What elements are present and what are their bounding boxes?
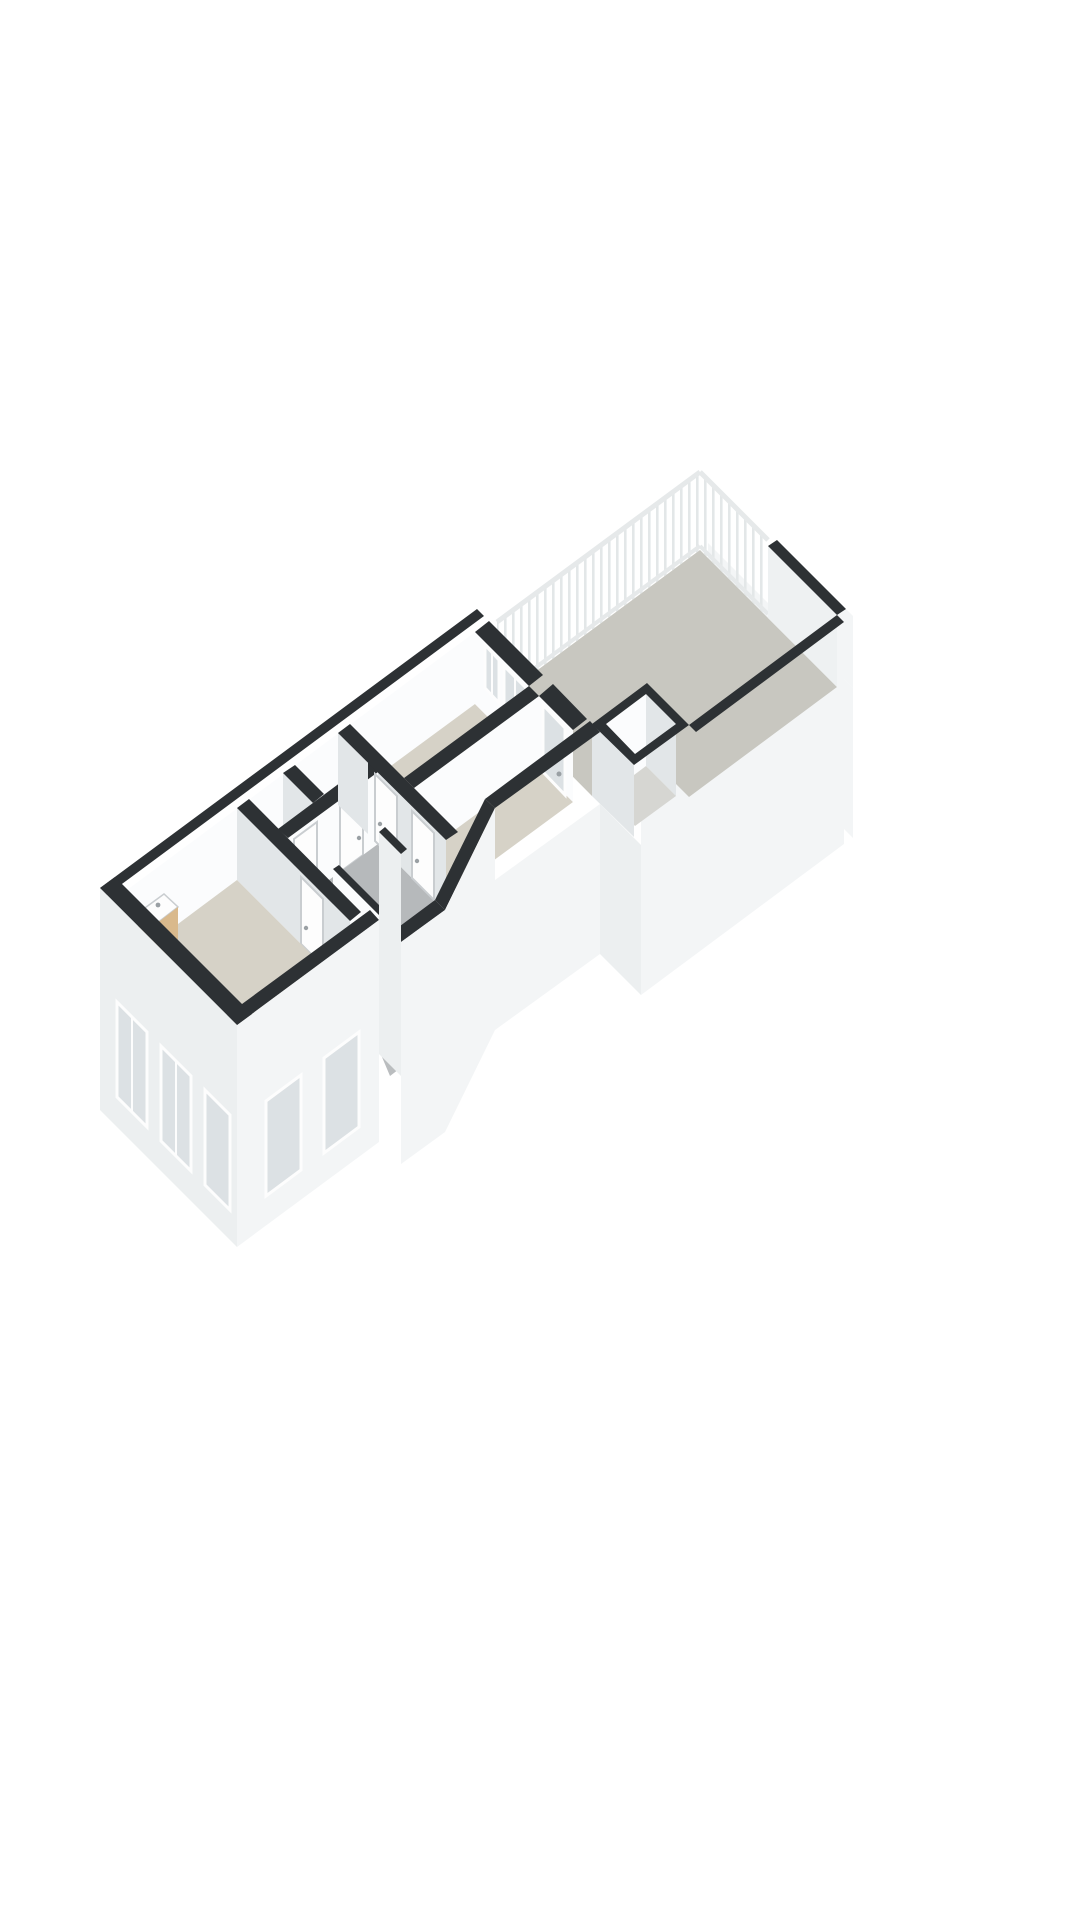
stair-bay-south-facade [401,910,445,1164]
terrace-west-facade-strip [600,804,641,995]
bedroom2-door-handle [415,859,419,863]
floorplan-svg [0,0,1080,1920]
living-room-door-handle [304,926,308,930]
bedroom-door-handle [378,822,382,826]
bedroom2-door-handle [557,772,562,777]
stair-bay-west-wall-face [379,832,401,1076]
apartment-group [100,609,600,1247]
vanity-tap [156,903,161,908]
floorplan-3d-render [0,0,1080,1920]
closet-door-handle [357,836,361,840]
